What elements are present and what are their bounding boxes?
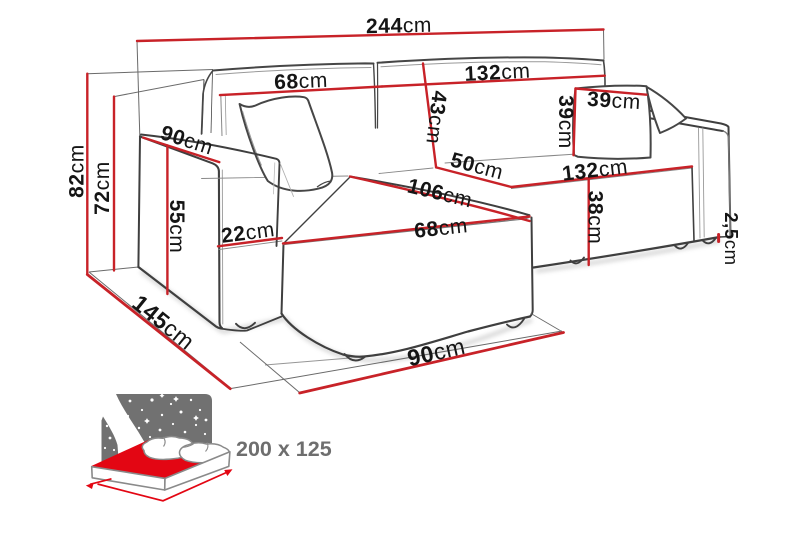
svg-text:68cm: 68cm <box>413 214 469 243</box>
svg-text:55cm: 55cm <box>165 200 188 254</box>
svg-text:90cm: 90cm <box>405 333 468 371</box>
svg-text:22cm: 22cm <box>220 218 276 248</box>
svg-text:132cm: 132cm <box>464 60 531 86</box>
svg-text:39cm: 39cm <box>586 88 641 114</box>
svg-text:132cm: 132cm <box>561 155 629 185</box>
svg-text:2,5cm: 2,5cm <box>721 212 742 265</box>
svg-text:43cm: 43cm <box>421 89 450 145</box>
svg-text:145cm: 145cm <box>127 289 199 354</box>
svg-text:244cm: 244cm <box>366 14 433 38</box>
svg-text:72cm: 72cm <box>91 161 114 215</box>
svg-text:68cm: 68cm <box>274 69 329 94</box>
svg-text:38cm: 38cm <box>584 191 607 245</box>
svg-text:106cm: 106cm <box>405 174 475 212</box>
svg-text:200 x 125: 200 x 125 <box>236 437 332 461</box>
svg-text:82cm: 82cm <box>66 144 89 198</box>
svg-text:39cm: 39cm <box>554 95 577 149</box>
